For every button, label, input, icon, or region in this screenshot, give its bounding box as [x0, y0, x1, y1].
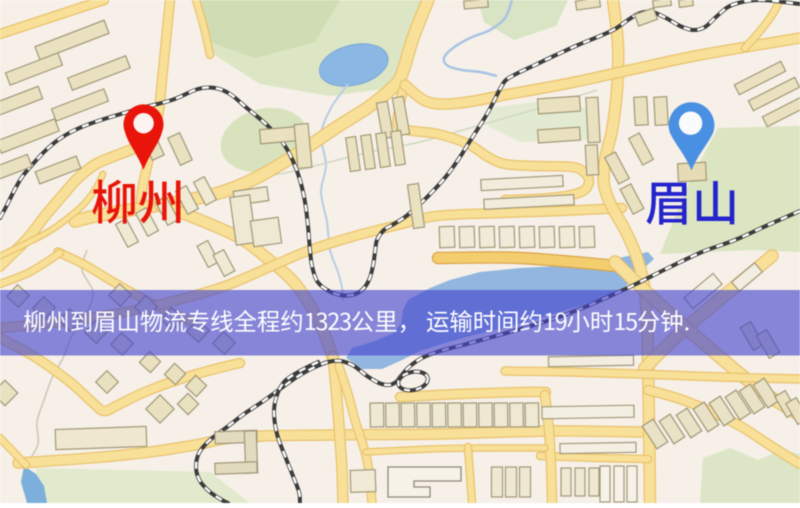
- svg-text:柳州到眉山物流专线全程约1323公里，运输时间约19小时15: 柳州到眉山物流专线全程约1323公里，运输时间约19小时15分钟.: [23, 303, 690, 337]
- svg-text:柳州: 柳州: [91, 165, 185, 234]
- svg-text:眉山: 眉山: [645, 166, 739, 235]
